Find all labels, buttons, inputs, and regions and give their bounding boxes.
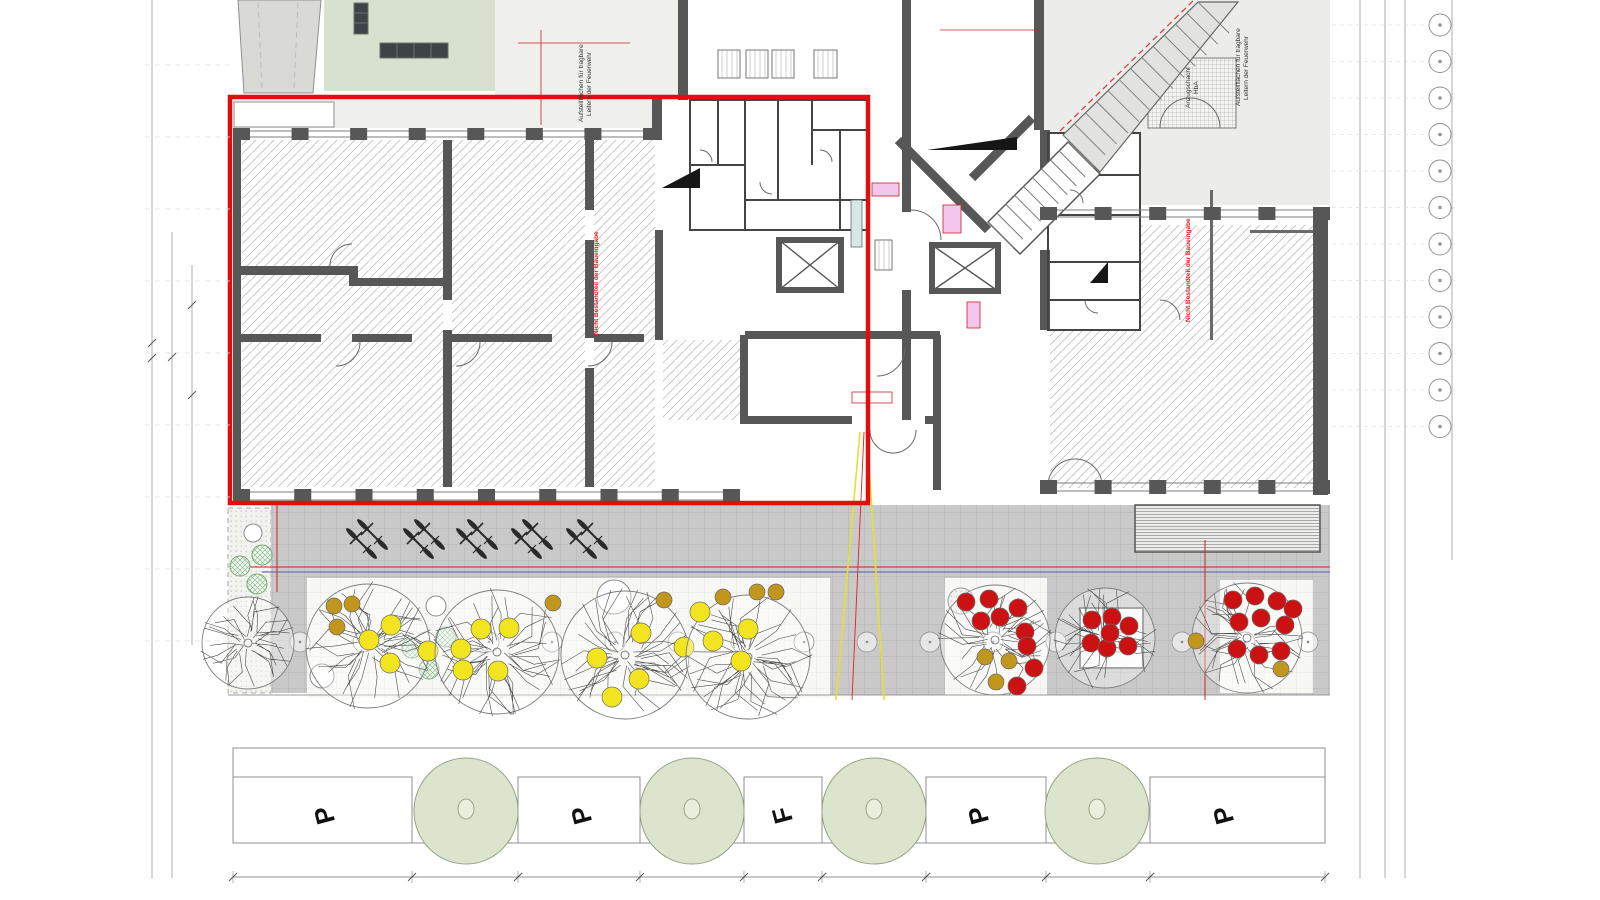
tree-dot-red [1018, 637, 1036, 655]
shrub-circle [247, 574, 267, 594]
tag-pink-1 [872, 183, 899, 196]
facade-pillar [584, 128, 601, 140]
tree-dot-yellow [451, 639, 471, 659]
parking-band: PPFPP [233, 748, 1325, 864]
tree-dot-olive [1188, 633, 1204, 649]
tree-dot-red [991, 608, 1009, 626]
wedge-1 [927, 137, 1017, 150]
floor-plan-drawing: PPFPP Aufstellflächen für tragbare Leite… [0, 0, 1600, 900]
driveway-ramp [238, 0, 321, 93]
tree-dot-red [1276, 616, 1294, 634]
tree-dot-olive [977, 649, 993, 665]
fire-ladder-label-left: Aufstellflächen für tragbare [578, 44, 585, 122]
lawn-tree-trunk [1089, 799, 1105, 819]
facade-pillar [1095, 480, 1112, 494]
facade-pillar [1040, 480, 1057, 494]
tree-dot-red [1119, 637, 1137, 655]
tree-dot-olive [1001, 653, 1017, 669]
tag-pink-2 [943, 205, 961, 233]
tree-dot-red [1103, 608, 1121, 626]
tree-dot-yellow [381, 615, 401, 635]
lawn-tree-trunk [684, 799, 700, 819]
tree-dot-red [1009, 599, 1027, 617]
tree [201, 596, 294, 689]
tree-dot-yellow [453, 660, 473, 680]
svg-text:HbA: HbA [1193, 81, 1200, 94]
tree-dot-olive [749, 584, 765, 600]
tree-dot-red [1250, 646, 1268, 664]
tree-dot-yellow [731, 651, 751, 671]
tree-dot-olive [656, 592, 672, 608]
tree-dot-red [1082, 634, 1100, 652]
tree-dot-red [1083, 611, 1101, 629]
facade-pillar [292, 128, 309, 140]
tree-dot-olive [768, 584, 784, 600]
facade-pillar [409, 128, 426, 140]
shrub-circle [252, 545, 272, 565]
tree-dot-yellow [690, 602, 710, 622]
tree-dot-red [980, 590, 998, 608]
tree-dot-red [1120, 617, 1138, 635]
tree-dot-yellow [380, 653, 400, 673]
tree-dot-red [957, 593, 975, 611]
tree-dot-yellow [629, 669, 649, 689]
facade-pillar [643, 128, 660, 140]
svg-text:Leitern der Feuerwehr: Leitern der Feuerwehr [586, 51, 593, 116]
trees [201, 582, 1303, 719]
not-part-label-left: Nicht Bestandteil der Baueingabe [593, 231, 600, 335]
tree-dot-yellow [499, 618, 519, 638]
tree-dot-olive [988, 674, 1004, 690]
tree-dot-red [1252, 609, 1270, 627]
facade-pillar [1258, 480, 1275, 494]
facade-pillar [1258, 207, 1275, 220]
facade-pillar [467, 128, 484, 140]
lightwell [234, 102, 334, 127]
tree-dot-yellow [587, 648, 607, 668]
shrub-circle [230, 556, 250, 576]
tree-dot-olive [715, 589, 731, 605]
tree-dot-olive [344, 596, 360, 612]
parking-stall [1150, 777, 1325, 843]
facade-pillar [1149, 207, 1166, 220]
tree-dot-olive [326, 598, 342, 614]
tree-dot-red [1228, 640, 1246, 658]
tree-dot-olive [545, 595, 561, 611]
lawn-tree-trunk [866, 799, 882, 819]
shaft-label: Anzugschacht [1185, 67, 1192, 108]
grate [1135, 505, 1320, 552]
facade-pillar [1095, 207, 1112, 220]
facade-pillar [1204, 207, 1221, 220]
facade-pillar [1313, 207, 1330, 220]
facade-pillar [350, 128, 367, 140]
tree-dot-red [1101, 624, 1119, 642]
tree-dot-olive [1273, 661, 1289, 677]
roof-equipment-1 [354, 3, 368, 34]
schedule-table [875, 240, 892, 270]
tree-dot-yellow [738, 619, 758, 639]
tree-dot-olive [329, 619, 345, 635]
tree-dot-yellow [602, 687, 622, 707]
tree-dot-red [1025, 659, 1043, 677]
tree-dot-red [1224, 591, 1242, 609]
facade-pillar [1313, 480, 1330, 494]
tree-dot-red [1272, 642, 1290, 660]
facade-pillar [526, 128, 543, 140]
tree-dot-red [1268, 592, 1286, 610]
tag-cyan [851, 200, 862, 247]
floor-plan-canvas: PPFPP Aufstellflächen für tragbare Leite… [0, 0, 1600, 900]
fire-ladder-label-right: Aufstellflächen für tragbare [1235, 28, 1242, 106]
facade-pillar [1149, 480, 1166, 494]
tree-dot-yellow [488, 661, 508, 681]
svg-text:Leitern der Feuerwehr: Leitern der Feuerwehr [1243, 35, 1250, 100]
tree-dot-yellow [359, 630, 379, 650]
facade-pillar [233, 128, 250, 140]
tree-dot-yellow [471, 619, 491, 639]
schedule-table [746, 50, 768, 78]
tree-dot-red [1284, 600, 1302, 618]
tag-pink-3 [967, 302, 980, 328]
facade-pillar [1204, 480, 1221, 494]
facade-pillar [1040, 207, 1057, 220]
tree-dot-yellow [703, 631, 723, 651]
schedule-table [814, 50, 837, 78]
entry-hall [845, 420, 940, 487]
dim-box [852, 392, 892, 403]
marker-circle [426, 596, 446, 616]
tree-dot-red [1246, 587, 1264, 605]
lawn-tree-trunk [458, 799, 474, 819]
tree-dot-red [1008, 677, 1026, 695]
not-part-label-right: Nicht Bestandteil der Baueingabe [1185, 218, 1192, 322]
schedule-table [772, 50, 794, 78]
schedule-table [718, 50, 740, 78]
tree-dot-yellow [631, 623, 651, 643]
tree-dot-red [1230, 613, 1248, 631]
tree-dot-red [972, 612, 990, 630]
marker-circle [244, 524, 262, 542]
